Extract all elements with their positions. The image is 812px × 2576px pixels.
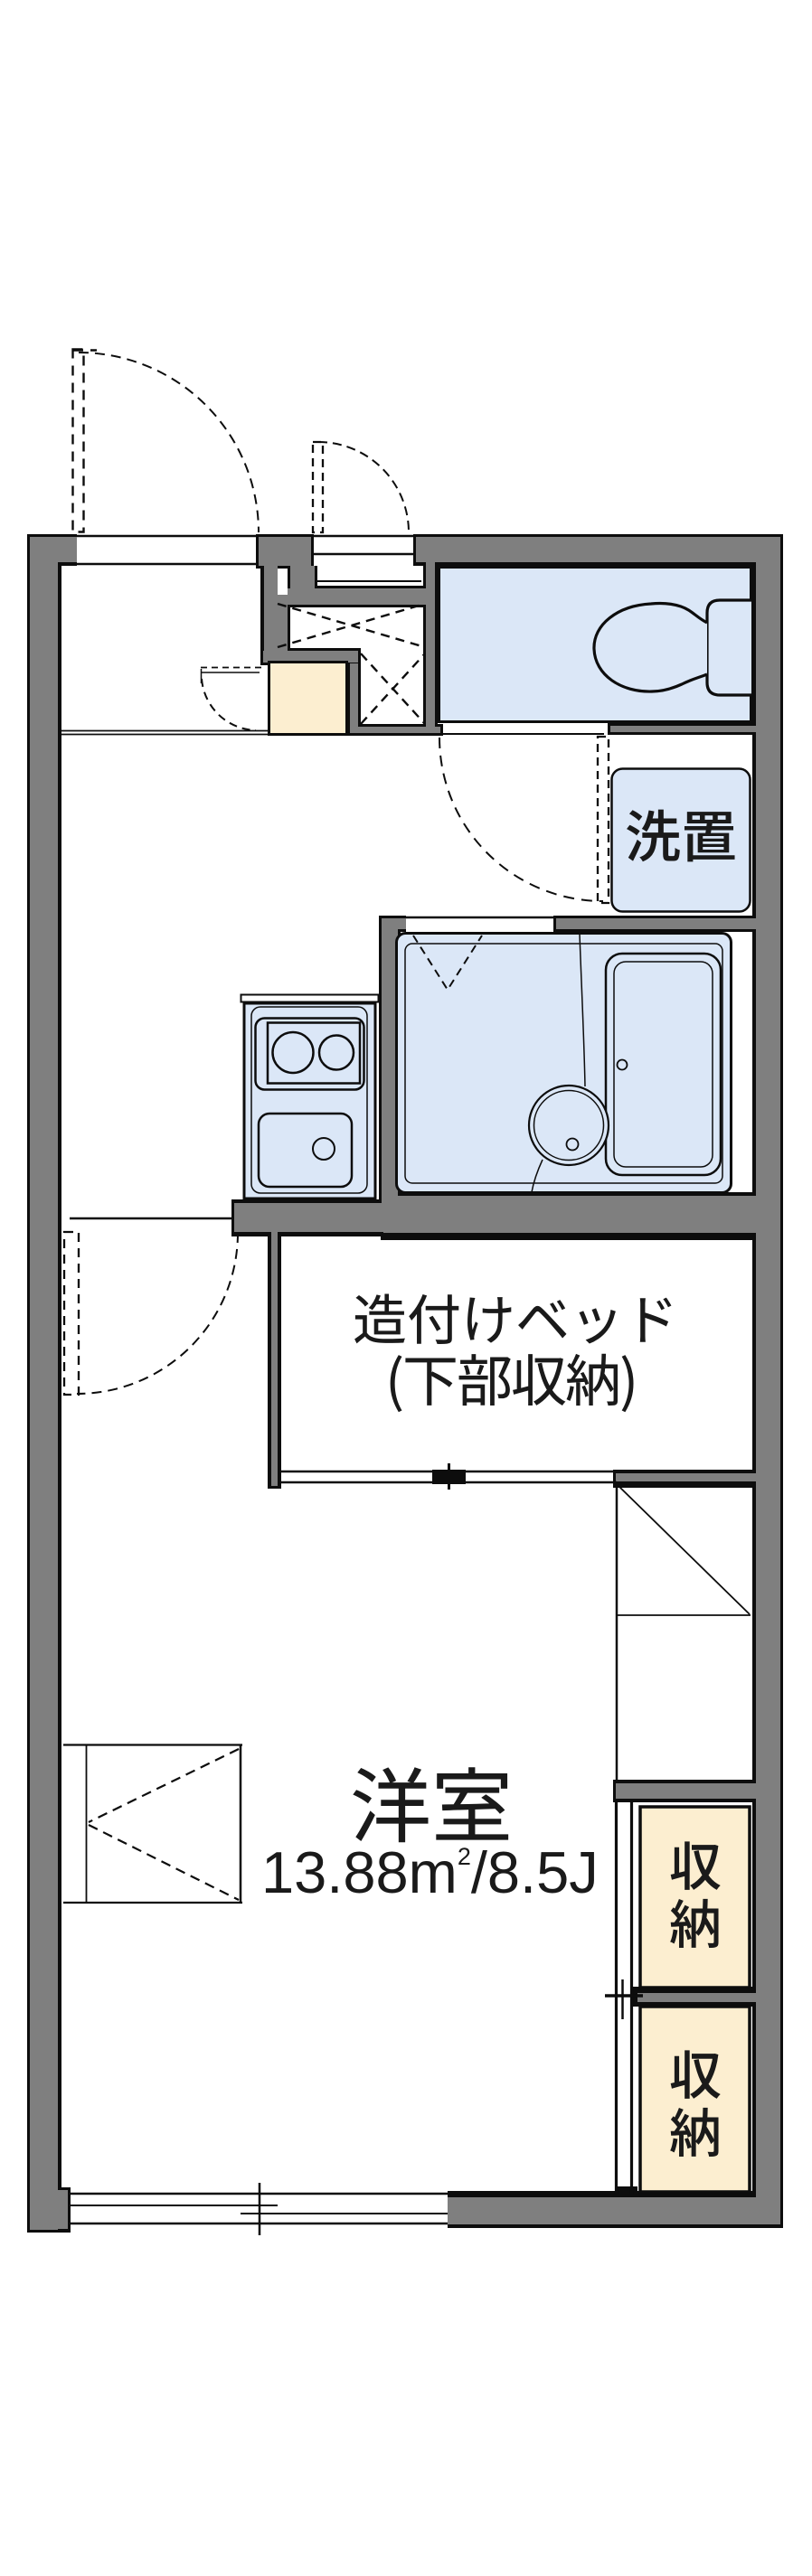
svg-text:13.88m2/8.5J: 13.88m2/8.5J (261, 1839, 599, 1905)
